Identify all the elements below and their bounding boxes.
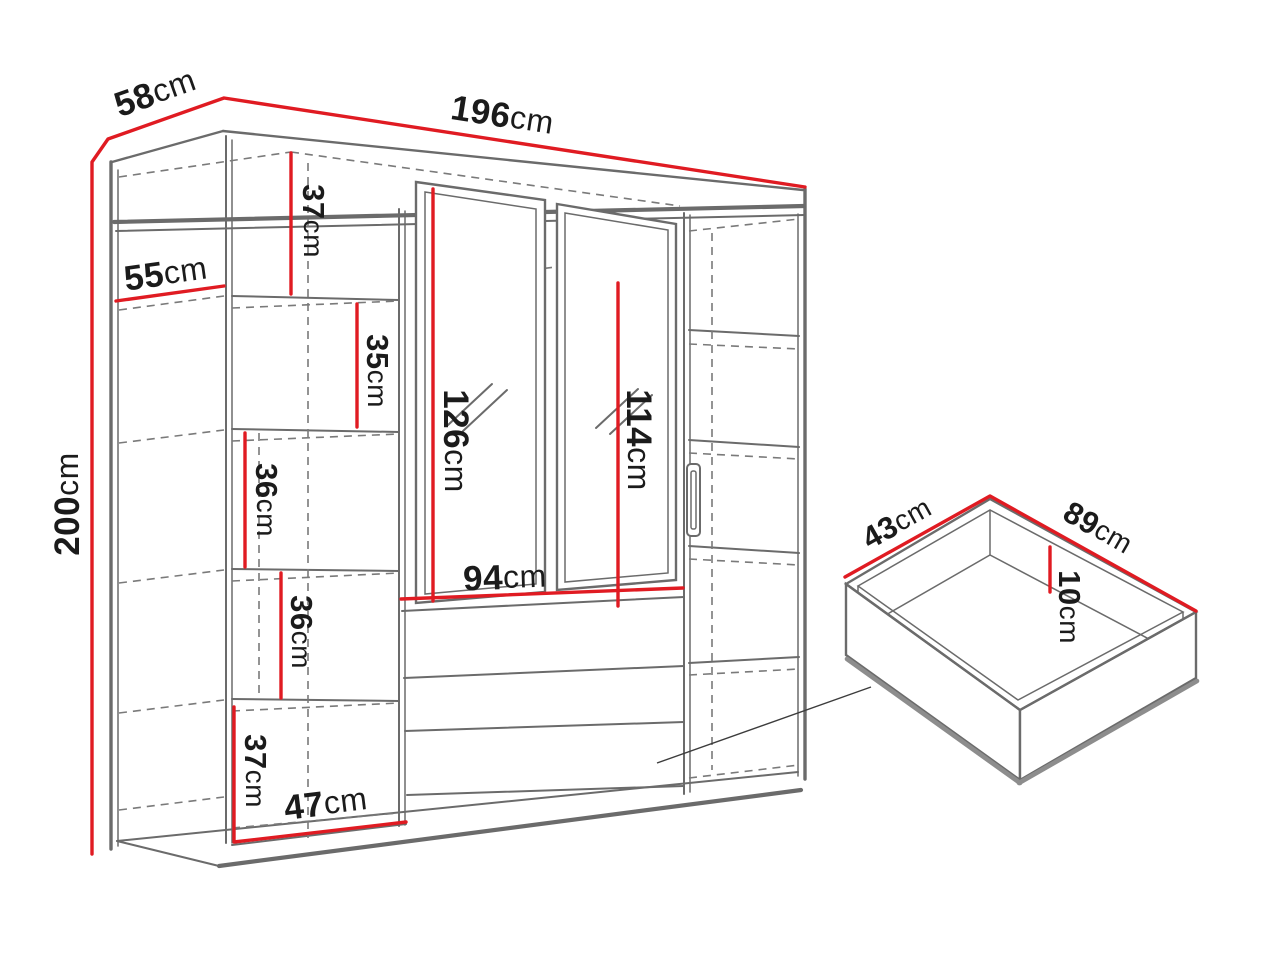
label-gap-37-bottom: 37cm bbox=[238, 734, 273, 808]
mirror-door-left bbox=[416, 182, 545, 603]
label-drawer-height-10: 10cm bbox=[1052, 570, 1087, 644]
label-gap-37-top: 37cm bbox=[296, 184, 331, 258]
label-mirror-width-94: 94cm bbox=[462, 557, 547, 599]
label-height-200: 200cm bbox=[48, 452, 87, 556]
label-gap-35: 35cm bbox=[360, 334, 395, 408]
label-mirror-left-126: 126cm bbox=[436, 389, 475, 493]
door-handle bbox=[687, 464, 700, 536]
wardrobe-dimension-diagram: 58cm 196cm 200cm 55cm 37cm 35cm 36cm 36c… bbox=[0, 0, 1280, 960]
label-mirror-right-114: 114cm bbox=[619, 389, 658, 491]
label-gap-36-a: 36cm bbox=[249, 463, 284, 537]
label-gap-36-b: 36cm bbox=[284, 595, 319, 669]
diagram-canvas: 58cm 196cm 200cm 55cm 37cm 35cm 36cm 36c… bbox=[0, 0, 1280, 960]
